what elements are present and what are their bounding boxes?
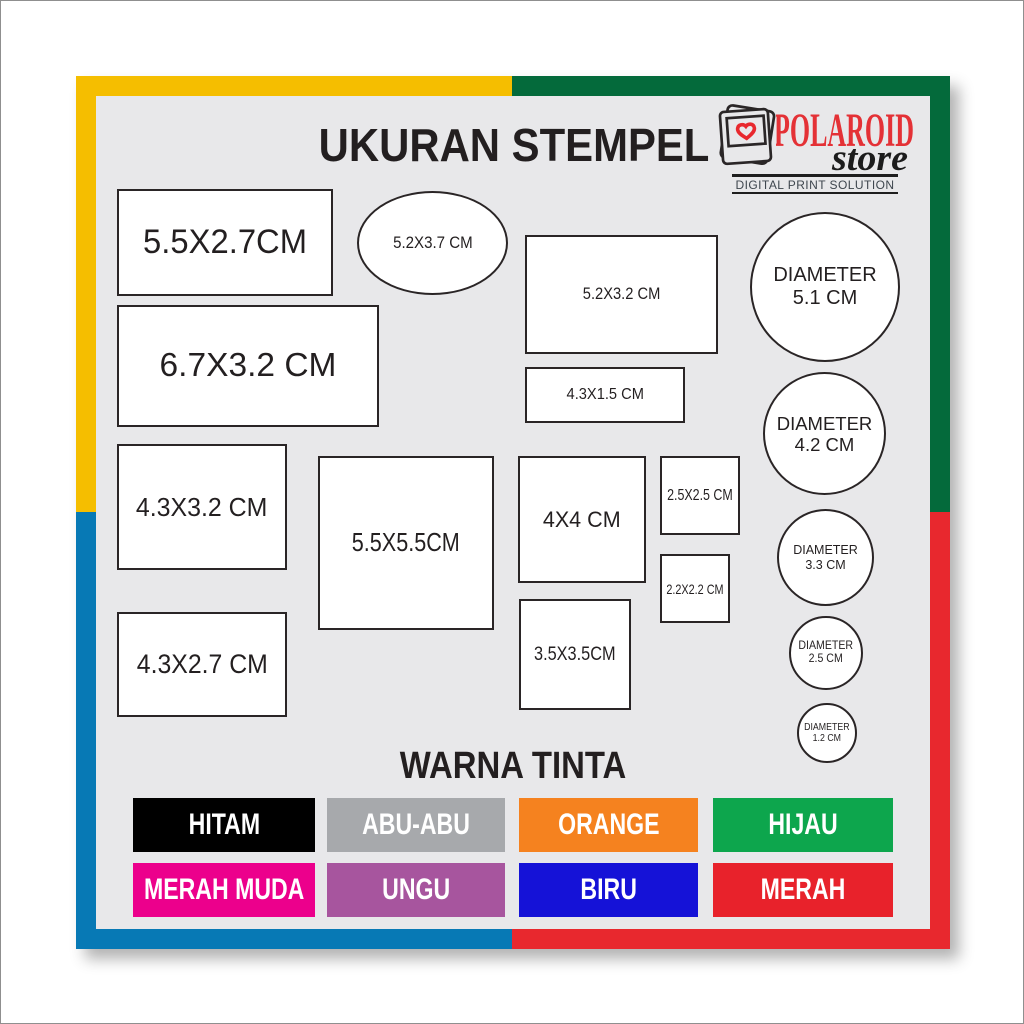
- svg-text:store: store: [831, 138, 908, 179]
